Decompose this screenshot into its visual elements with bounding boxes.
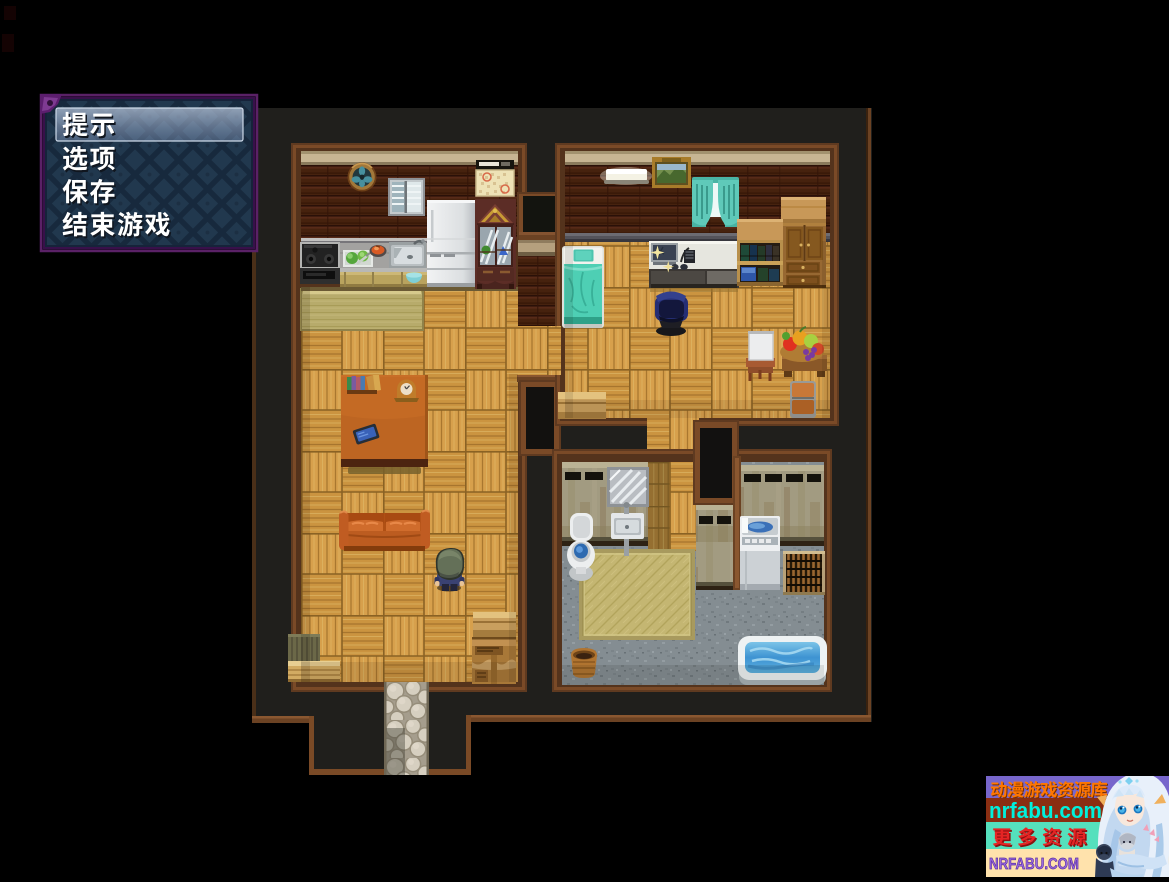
svg-text:NRFABU.COM: NRFABU.COM [989, 856, 1079, 873]
svg-text:nrfabu.com: nrfabu.com [989, 798, 1102, 823]
